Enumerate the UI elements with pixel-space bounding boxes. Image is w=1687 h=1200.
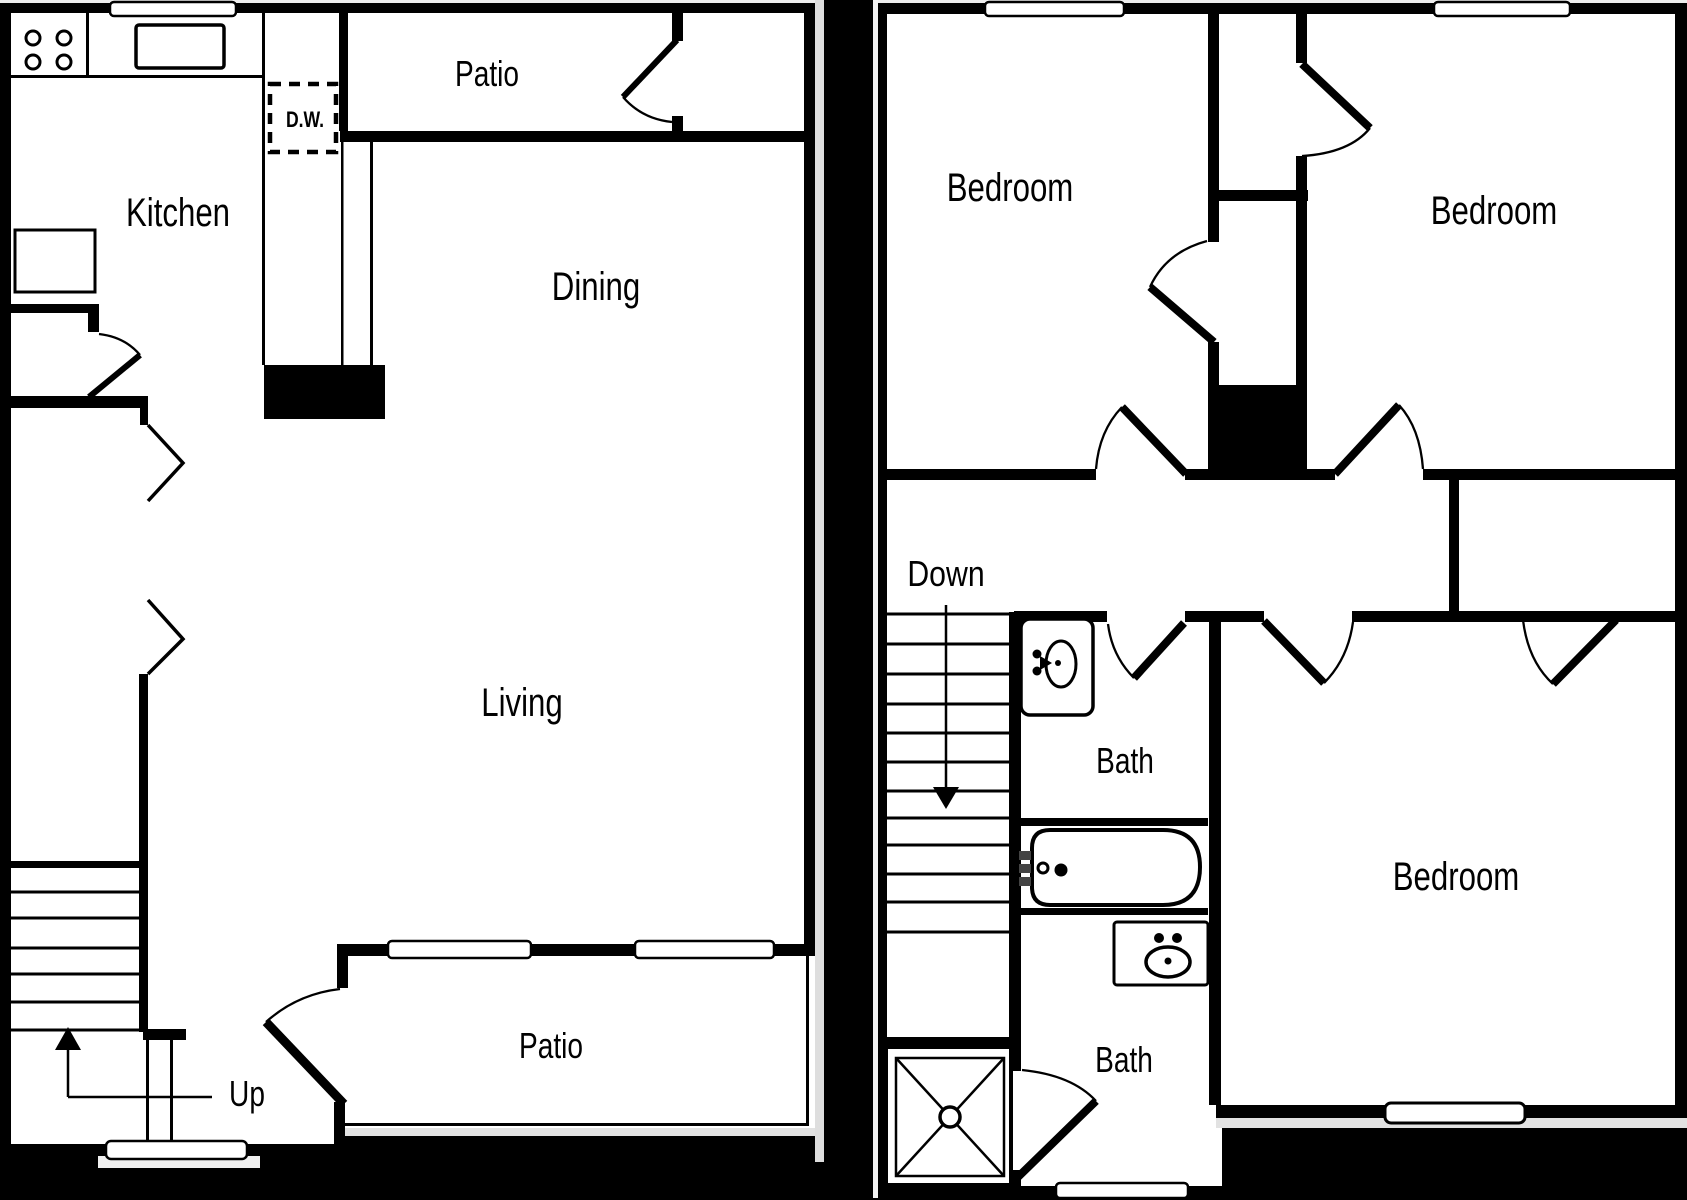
svg-text:D.W.: D.W. [286,108,324,132]
svg-text:Bedroom: Bedroom [947,165,1074,210]
svg-text:Patio: Patio [455,54,519,94]
svg-text:Bedroom: Bedroom [1393,854,1520,899]
svg-text:Patio: Patio [519,1026,583,1066]
svg-text:Bath: Bath [1095,1040,1153,1080]
svg-text:Living: Living [481,680,563,725]
svg-text:Kitchen: Kitchen [126,190,230,235]
svg-text:Up: Up [229,1074,265,1114]
svg-text:Bath: Bath [1096,741,1154,781]
svg-text:Dining: Dining [552,264,640,309]
svg-text:Down: Down [907,555,984,595]
svg-text:Bedroom: Bedroom [1431,188,1558,233]
